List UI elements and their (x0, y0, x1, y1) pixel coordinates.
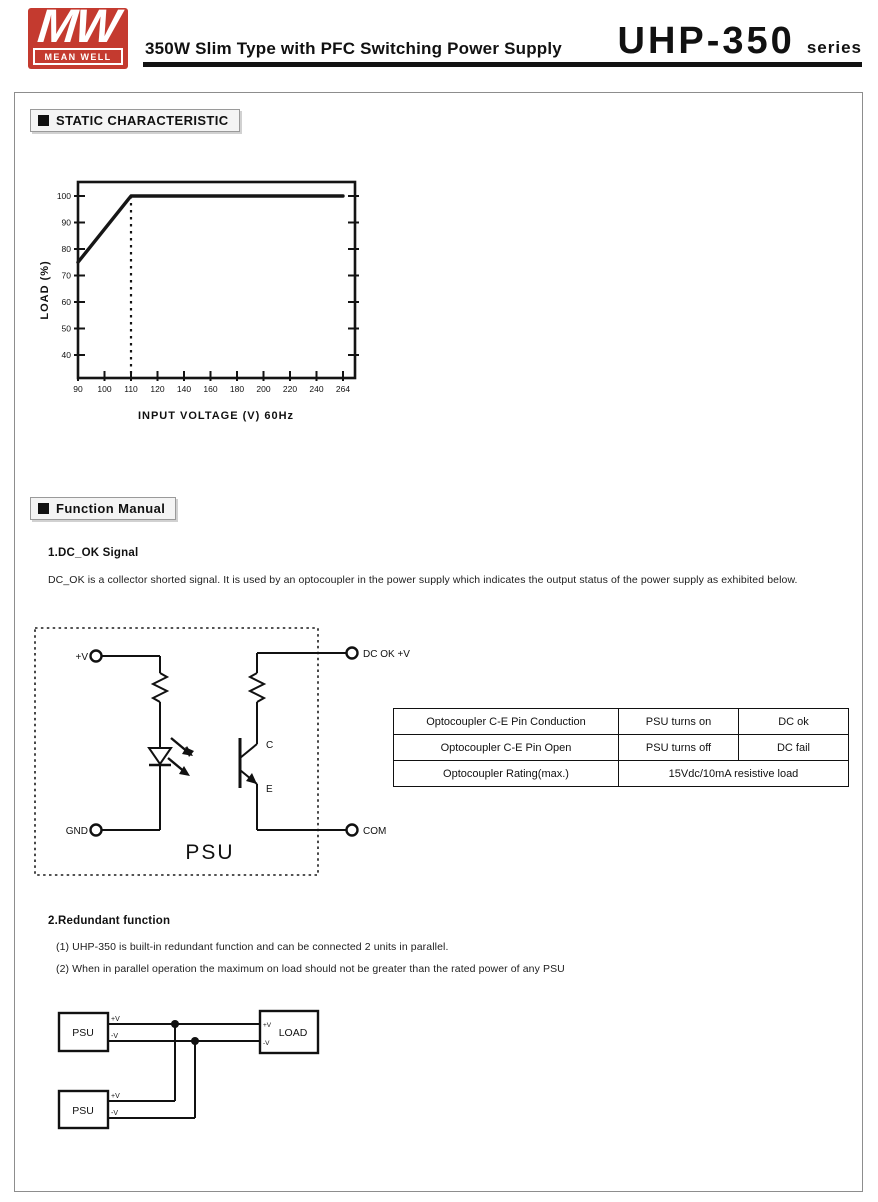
y-tick-label: 60 (62, 297, 72, 307)
table-cell: 15Vdc/10mA resistive load (619, 761, 849, 787)
x-tick-label: 264 (336, 384, 350, 394)
meanwell-logo: MW MEAN WELL (28, 8, 128, 69)
header-divider (143, 62, 862, 67)
x-tick-label: 110 (124, 384, 138, 394)
chart-y-axis-label: LOAD (%) (40, 260, 51, 319)
collector-label: C (266, 740, 273, 751)
x-tick-label: 200 (256, 384, 270, 394)
led-symbol (149, 748, 171, 764)
model-name: UHP-350 (618, 22, 795, 60)
dc-ok-terminal (347, 648, 358, 659)
psu-dashed-box (35, 628, 318, 875)
com-terminal (347, 825, 358, 836)
series-word: series (807, 38, 862, 58)
plus-v-label: +V (75, 652, 88, 663)
resistor-symbol (250, 673, 264, 702)
section-bullet-icon (38, 115, 49, 126)
chart-x-axis-label: INPUT VOLTAGE (V) 60Hz (138, 410, 294, 422)
load-line (78, 196, 343, 262)
section-bullet-icon (38, 503, 49, 514)
junction-dot (191, 1037, 199, 1045)
table-row: Optocoupler C-E Pin Conduction PSU turns… (394, 709, 849, 735)
psu2-label: PSU (72, 1105, 94, 1117)
y-tick-label: 40 (62, 350, 72, 360)
led-emission-arrows (168, 738, 194, 776)
redundant-heading: 2.Redundant function (48, 915, 170, 927)
table-cell: PSU turns on (619, 709, 739, 735)
x-tick-label: 240 (309, 384, 323, 394)
section-title: Function Manual (56, 501, 165, 516)
psu2-plus-label: +V (111, 1093, 120, 1100)
table-cell: Optocoupler C-E Pin Open (394, 735, 619, 761)
com-label: COM (363, 826, 386, 837)
load-label: LOAD (279, 1027, 308, 1039)
y-tick-label: 50 (62, 324, 72, 334)
dc-ok-description: DC_OK is a collector shorted signal. It … (48, 574, 798, 586)
x-tick-label: 160 (203, 384, 217, 394)
emitter-arrow (246, 773, 257, 784)
table-row: Optocoupler C-E Pin Open PSU turns off D… (394, 735, 849, 761)
section-title: STATIC CHARACTERISTIC (56, 113, 229, 128)
redundant-connection-diagram: PSU PSU LOAD +V -V +V -V +V -V (40, 1000, 340, 1140)
y-tick-label: 80 (62, 244, 72, 254)
plus-v-terminal (91, 651, 102, 662)
load-minus-label: -V (263, 1040, 270, 1047)
y-tick-label: 90 (62, 218, 72, 228)
x-tick-label: 180 (230, 384, 244, 394)
logo-mw-monogram: MW (26, 2, 131, 49)
static-characteristic-chart: LOAD (%) INPUT VOLTAGE (V) 60Hz 10090807… (40, 172, 370, 432)
resistor-symbol (153, 673, 167, 702)
psu2-minus-label: -V (111, 1110, 118, 1117)
table-cell: DC fail (739, 735, 849, 761)
series-title: UHP-350 series (618, 22, 862, 60)
x-tick-label: 90 (73, 384, 83, 394)
x-tick-label: 120 (150, 384, 164, 394)
gnd-terminal (91, 825, 102, 836)
table-cell: DC ok (739, 709, 849, 735)
x-tick-label: 140 (177, 384, 191, 394)
x-tick-label: 220 (283, 384, 297, 394)
section-static-characteristic: STATIC CHARACTERISTIC (30, 109, 240, 132)
redundant-note-1: (1) UHP-350 is built-in redundant functi… (56, 941, 448, 953)
psu-label: PSU (185, 841, 234, 864)
x-tick-label: 100 (97, 384, 111, 394)
psu1-label: PSU (72, 1027, 94, 1039)
redundant-note-2: (2) When in parallel operation the maxim… (56, 963, 565, 975)
table-cell: Optocoupler Rating(max.) (394, 761, 619, 787)
dc-ok-heading: 1.DC_OK Signal (48, 547, 138, 559)
logo-brand-text: MEAN WELL (33, 48, 123, 65)
psu1-minus-label: -V (111, 1033, 118, 1040)
section-function-manual: Function Manual (30, 497, 176, 520)
table-cell: Optocoupler C-E Pin Conduction (394, 709, 619, 735)
psu1-plus-label: +V (111, 1016, 120, 1023)
document-subtitle: 350W Slim Type with PFC Switching Power … (145, 39, 562, 59)
y-tick-label: 100 (57, 191, 71, 201)
gnd-label: GND (66, 826, 88, 837)
y-tick-label: 70 (62, 271, 72, 281)
table-row: Optocoupler Rating(max.) 15Vdc/10mA resi… (394, 761, 849, 787)
emitter-label: E (266, 784, 273, 795)
junction-dot (171, 1020, 179, 1028)
dc-ok-label: DC OK +V (363, 649, 410, 660)
table-cell: PSU turns off (619, 735, 739, 761)
optocoupler-table: Optocoupler C-E Pin Conduction PSU turns… (393, 708, 849, 787)
load-plus-label: +V (263, 1022, 272, 1029)
